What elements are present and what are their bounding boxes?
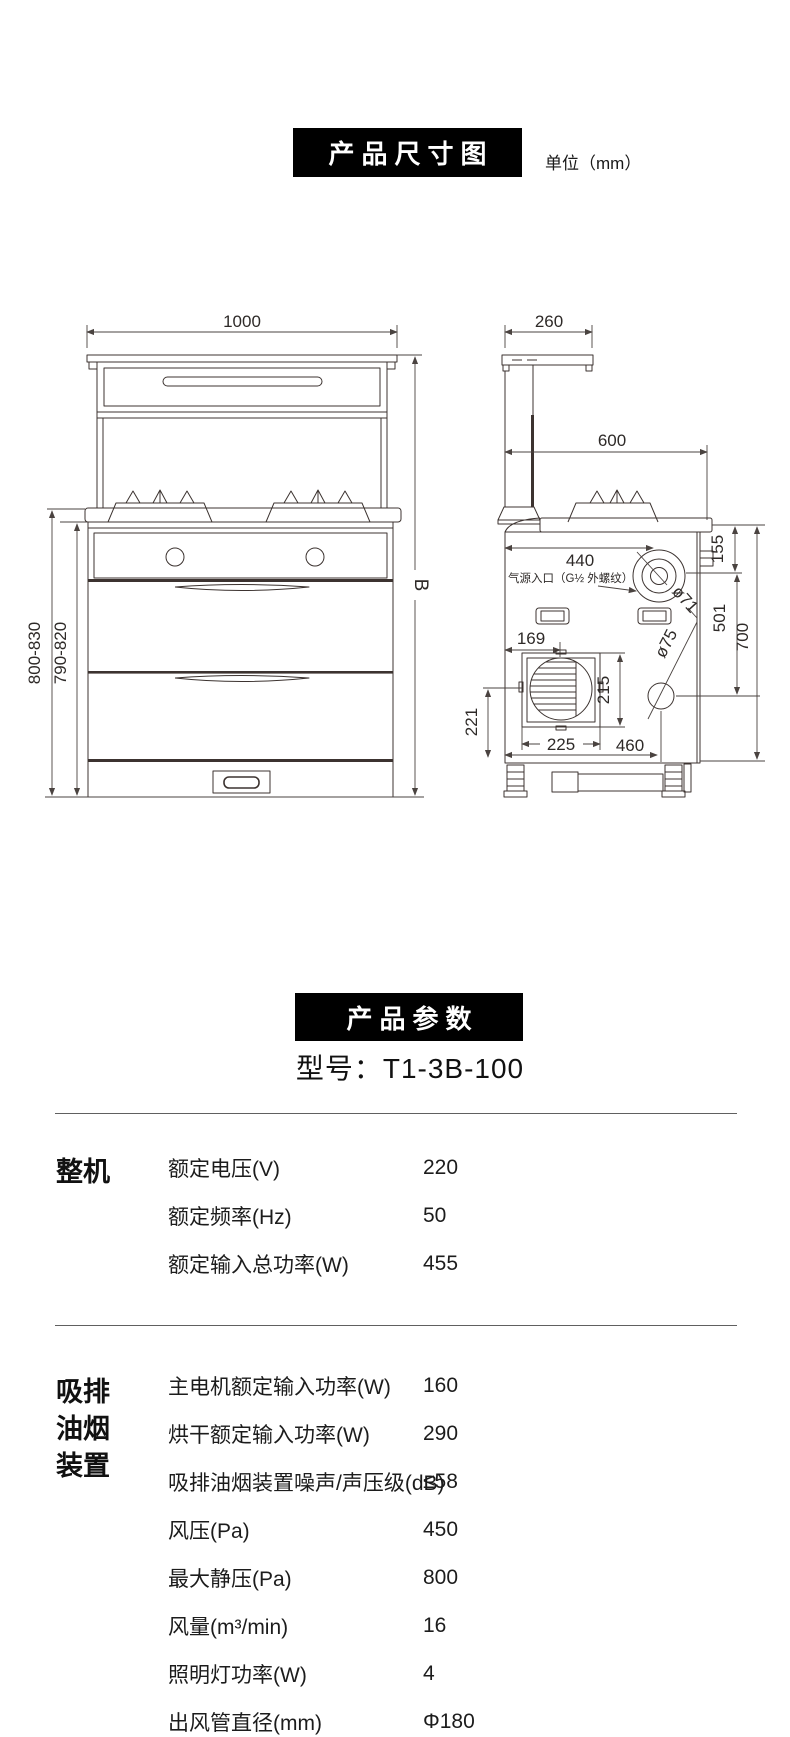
back-slot-handles [536,608,671,624]
spec-label: 主电机额定输入功率(W) [168,1371,391,1401]
spec-label: 吸排油烟装置噪声/声压级(dB) [168,1467,445,1497]
spec-value: 160 [423,1374,458,1398]
spec-value: 220 [423,1156,458,1180]
table-row: 烘干额定输入功率(W) 290 [168,1410,737,1458]
spec-value: 16 [423,1614,446,1638]
side-hood-depth-label: 260 [535,312,563,331]
spec-label: 额定输入总功率(W) [168,1249,349,1279]
spec-category: 吸排油烟装置 [56,1374,118,1485]
spec-value: ≤58 [423,1470,458,1494]
spec-value: Φ180 [423,1710,475,1734]
front-height-b-label: B [410,579,431,592]
dimension-drawing: 1000 [0,270,790,815]
dim-155-label: 155 [708,535,727,563]
dim-221-label: 221 [462,708,481,736]
spec-category: 整机 [56,1154,110,1191]
outlet-diameter-label: ø75 [651,626,681,661]
table-row: 照明灯功率(W) 4 [168,1650,737,1698]
spec-value: 455 [423,1252,458,1276]
table-row: 风量(m³/min) 16 [168,1602,737,1650]
spec-label: 照明灯功率(W) [168,1659,307,1689]
dim-700-label: 700 [733,623,752,651]
side-inlet-x-label: 440 [566,551,594,570]
table-row: 出风管直径(mm) Φ180 [168,1698,737,1737]
front-height-outer-label: 800-830 [25,622,44,684]
dim-460-label: 460 [616,736,644,755]
params-section-title-text: 产品参数 [339,999,478,1036]
gas-outlet-port [648,683,674,709]
spec-value: 50 [423,1204,446,1228]
spec-label: 烘干额定输入功率(W) [168,1419,370,1449]
table-row: 吸排油烟装置噪声/声压级(dB) ≤58 [168,1458,737,1506]
spec-label: 额定频率(Hz) [168,1201,292,1231]
front-burner-right [266,490,370,522]
front-width-label: 1000 [223,312,261,331]
front-height-inner-label: 790-820 [51,622,70,684]
front-view: 1000 [25,312,431,797]
spec-value: 4 [423,1662,435,1686]
table-row: 最大静压(Pa) 800 [168,1554,737,1602]
spec-value: 450 [423,1518,458,1542]
side-burner [568,490,658,522]
params-section-title: 产品参数 [295,993,523,1041]
table-row: 额定电压(V) 220 [168,1144,737,1192]
spec-value: 800 [423,1566,458,1590]
spec-label: 出风管直径(mm) [168,1707,322,1737]
table-row: 主电机额定输入功率(W) 160 [168,1362,737,1410]
dim-169-label: 169 [517,629,545,648]
spec-label: 风量(m³/min) [168,1611,288,1641]
dim-501-label: 501 [710,604,729,632]
table-row: 额定频率(Hz) 50 [168,1192,737,1240]
spec-group-smoke-exhaust: 吸排油烟装置 主电机额定输入功率(W) 160 烘干额定输入功率(W) 290 … [55,1325,737,1737]
fan-outlet-box [519,650,603,730]
dim-225-label: 225 [547,735,575,754]
spec-group-whole-machine: 整机 额定电压(V) 220 额定频率(Hz) 50 额定输入总功率(W) 45… [55,1113,737,1325]
dimension-section-title-text: 产品尺寸图 [321,134,493,171]
product-spec-page: 产品尺寸图 单位（mm） 1000 [0,0,790,1737]
side-view: 260 600 [462,312,765,797]
spec-table: 整机 额定电压(V) 220 额定频率(Hz) 50 额定输入总功率(W) 45… [55,1113,737,1737]
side-depth-label: 600 [598,431,626,450]
gas-inlet-label: 气源入口（G½ 外螺纹） [508,571,633,585]
control-knob-right [306,548,324,566]
side-legs-duct [504,764,691,797]
unit-note: 单位（mm） [545,149,641,174]
spec-label: 额定电压(V) [168,1153,280,1183]
dim-215-label: 215 [594,676,613,704]
spec-label: 风压(Pa) [168,1515,250,1545]
table-row: 风压(Pa) 450 [168,1506,737,1554]
table-row: 额定输入总功率(W) 455 [168,1240,737,1288]
front-burner-left [108,490,212,522]
dimension-section-title: 产品尺寸图 [293,128,522,177]
spec-label: 最大静压(Pa) [168,1563,292,1593]
control-knob-left [166,548,184,566]
model-number: 型号：T1-3B-100 [20,1047,790,1087]
spec-value: 290 [423,1422,458,1446]
kick-vent [213,771,270,793]
